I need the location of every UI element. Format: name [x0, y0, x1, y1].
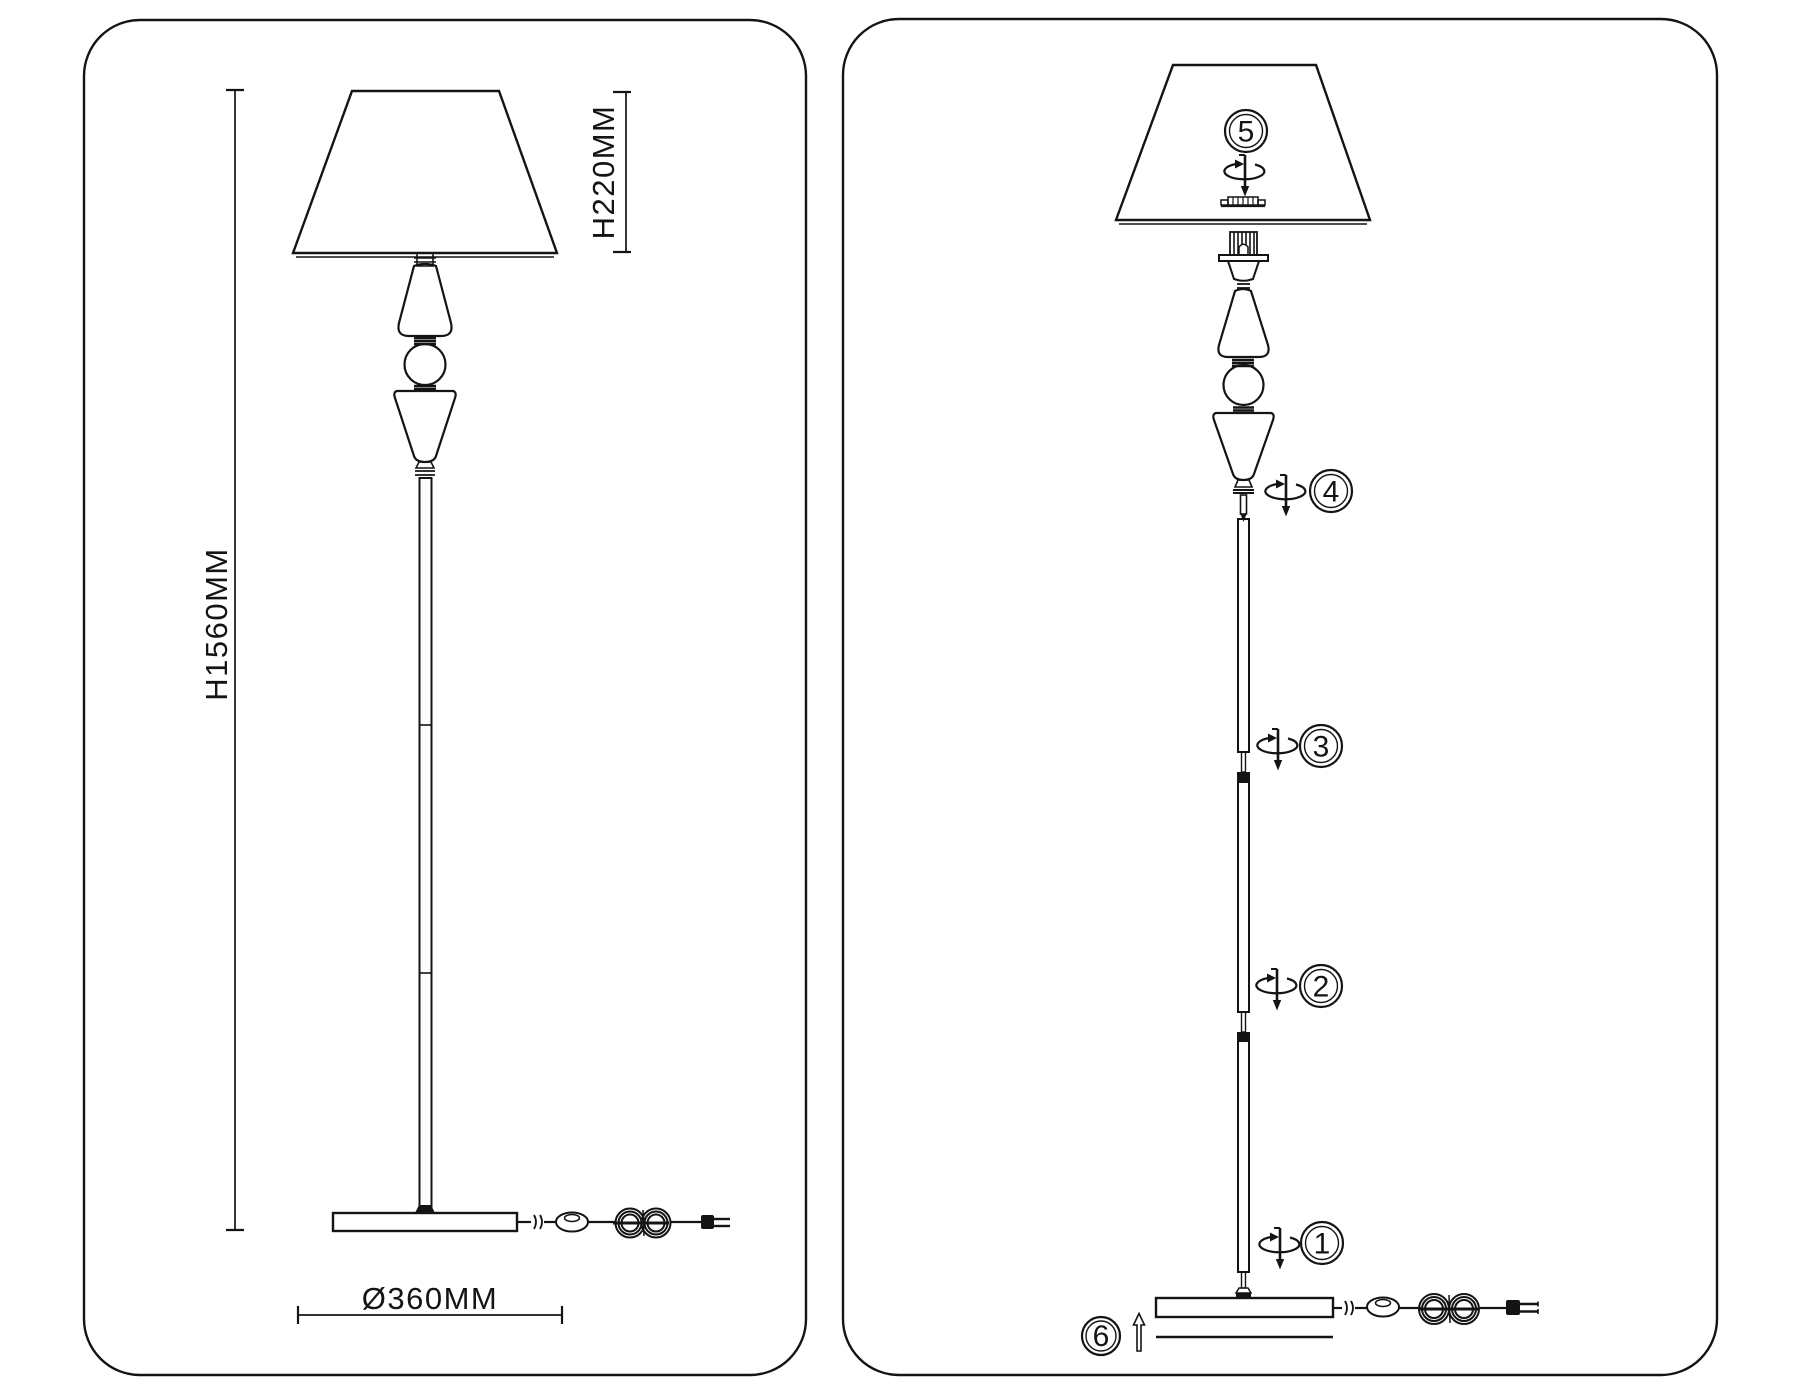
- step-number: 2: [1313, 971, 1330, 1004]
- diagram-canvas: H1560MM H220MM Ø360MM: [0, 0, 1800, 1400]
- step-number: 4: [1323, 476, 1340, 509]
- floor-lamp-instruction-sheet: H1560MM H220MM Ø360MM: [0, 0, 1800, 1400]
- step-number: 1: [1314, 1228, 1331, 1261]
- shade-height-label: H220MM: [586, 105, 621, 240]
- base-diameter-label: Ø360MM: [362, 1281, 498, 1316]
- finial-washer: [1221, 197, 1265, 206]
- tube-socket-cap: [1237, 772, 1250, 782]
- step-number: 5: [1238, 116, 1255, 149]
- overall-height-label: H1560MM: [199, 547, 234, 701]
- step-number: 3: [1313, 731, 1330, 764]
- right-panel-frame: [843, 19, 1717, 1375]
- left-panel-frame: [84, 20, 806, 1375]
- tube-socket-cap: [1237, 1032, 1250, 1041]
- step-number: 6: [1093, 1320, 1110, 1353]
